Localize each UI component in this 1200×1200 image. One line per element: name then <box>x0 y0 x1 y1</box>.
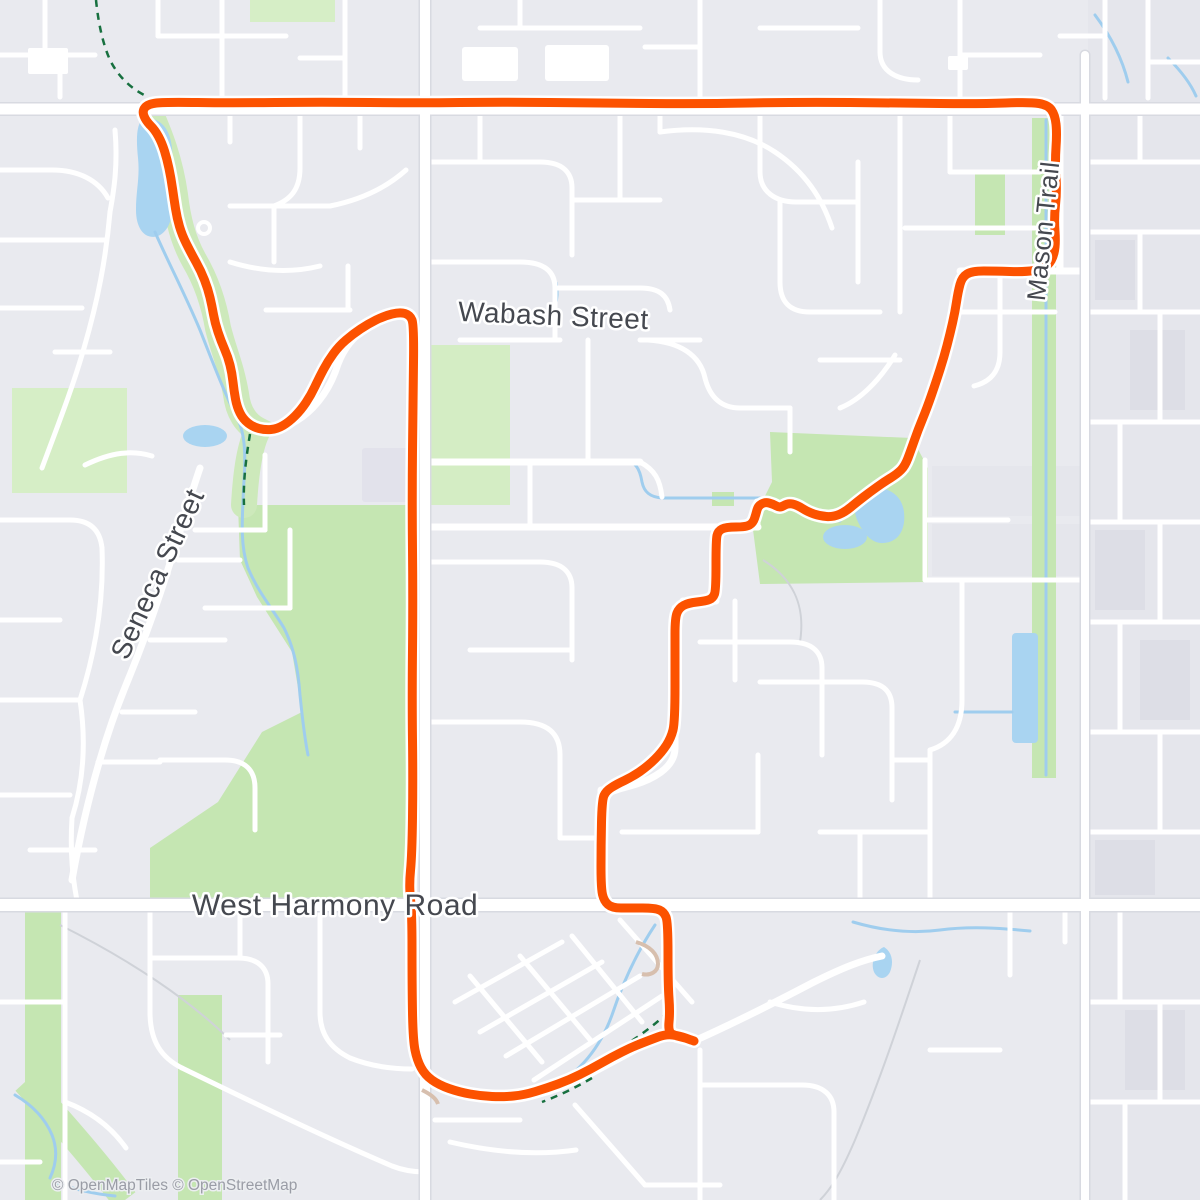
street-label-west-harmony: West Harmony Road <box>192 889 478 922</box>
map-attribution[interactable]: © OpenMapTiles © OpenStreetMap <box>52 1177 297 1194</box>
map-canvas[interactable]: Wabash Street Seneca Street West Harmony… <box>0 0 1200 1200</box>
activity-map[interactable]: Wabash Street Seneca Street West Harmony… <box>0 0 1200 1200</box>
